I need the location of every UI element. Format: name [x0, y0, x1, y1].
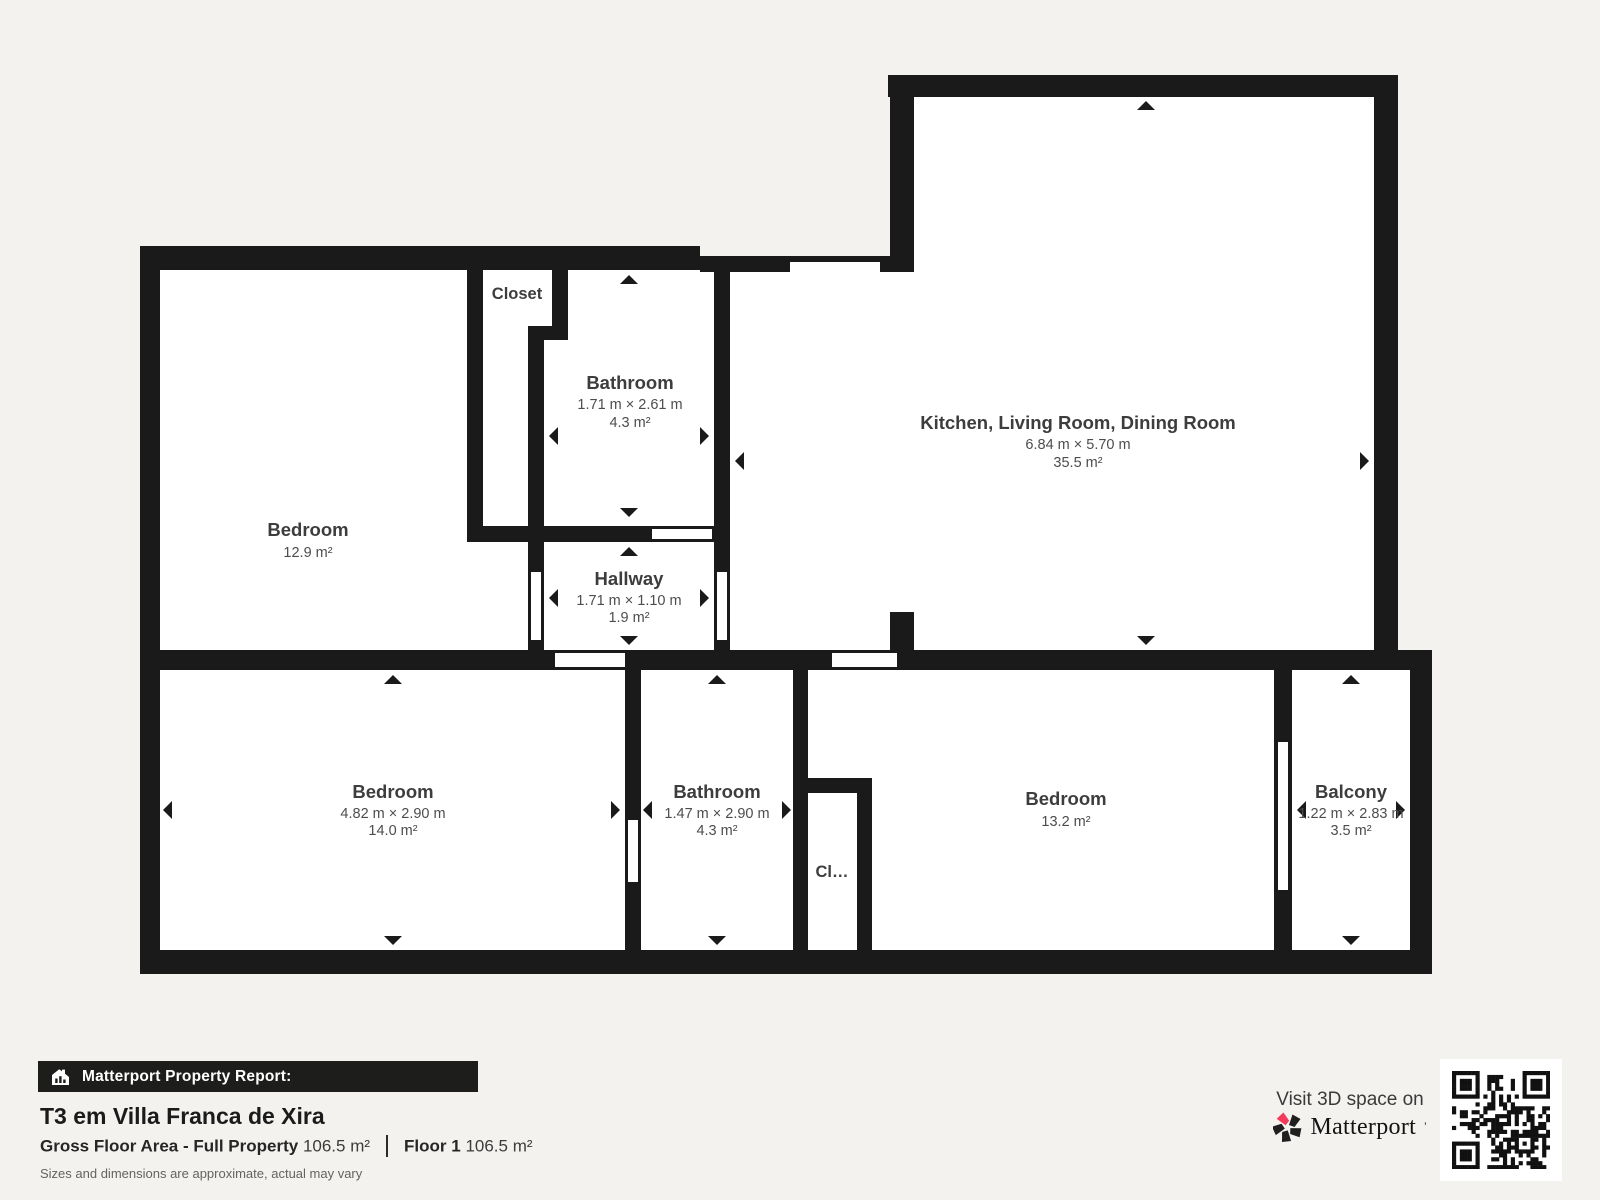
wall-bedroom1-right: [467, 270, 483, 526]
door-bedroom3-balcony: [1278, 742, 1288, 890]
room-label-closet-2: Cl…: [816, 863, 849, 881]
door-entrance: [790, 262, 880, 272]
room-name: Balcony: [1315, 781, 1388, 802]
room-area: 13.2 m²: [1041, 814, 1090, 830]
room-name: Closet: [492, 285, 543, 303]
wall-closet1-notch: [528, 326, 568, 340]
wall-closet1-right-upper: [552, 270, 568, 326]
matterport-pinwheel-icon: [1273, 1112, 1302, 1142]
wall-kitchen-top: [888, 75, 1398, 97]
matterport-trademark: ’: [1424, 1122, 1426, 1133]
room-name: Bathroom: [586, 372, 673, 393]
floor-kitchen-upper: [914, 97, 1374, 280]
qr-code-pattern: [1452, 1071, 1550, 1169]
room-label-closet-1: Closet: [492, 285, 543, 303]
gross-floor-area-value: 106.5 m²: [303, 1136, 370, 1155]
wall-balcony-right: [1410, 650, 1432, 974]
wall-kitchen-stub: [890, 612, 914, 650]
size-disclaimer: Sizes and dimensions are approximate, ac…: [40, 1166, 362, 1181]
door-hallway-bedroom2: [555, 653, 625, 667]
door-bedroom1-hallway: [531, 572, 541, 640]
door-kitchen-bedroom3: [832, 653, 897, 667]
summary-divider: [386, 1135, 388, 1157]
wall-closet1-right-lower: [528, 340, 544, 526]
room-name: Hallway: [595, 568, 665, 589]
room-dimensions: 1.47 m × 2.90 m: [664, 806, 769, 822]
room-area: 3.5 m²: [1330, 823, 1371, 839]
floor-bottom-band: [150, 668, 1410, 952]
matterport-floorplan-report-page: { "colors": { "background": "#f3f2ef", "…: [0, 0, 1600, 1200]
room-dimensions: 6.84 m × 5.70 m: [1025, 437, 1130, 453]
room-dimensions: 1.71 m × 2.61 m: [577, 397, 682, 413]
wall-top-left: [140, 246, 700, 270]
property-title: T3 em Villa Franca de Xira: [40, 1103, 325, 1130]
room-name: Cl…: [816, 863, 849, 881]
room-area: 14.0 m²: [368, 823, 417, 839]
room-name: Bedroom: [1025, 788, 1106, 809]
room-name: Bedroom: [352, 781, 433, 802]
room-area: 4.3 m²: [696, 823, 737, 839]
visit-3d-space-text: Visit 3D space on: [1252, 1089, 1448, 1111]
wall-bathroom2-right: [793, 670, 808, 950]
wall-kitchen-right: [1374, 75, 1398, 670]
matterport-logo[interactable]: Matterport’: [1252, 1112, 1448, 1142]
room-area: 12.9 m²: [283, 545, 332, 561]
floor-area-summary: Gross Floor Area - Full Property 106.5 m…: [40, 1136, 533, 1158]
door-bedroom2-bathroom2: [628, 820, 638, 882]
wall-mid-horizontal: [140, 650, 1432, 670]
wall-outer-bottom: [140, 950, 1432, 974]
wall-bedroom2-right: [625, 670, 641, 950]
qr-code[interactable]: [1440, 1059, 1562, 1181]
room-area: 1.9 m²: [608, 610, 649, 626]
door-bathroom1-hallway: [652, 529, 712, 539]
room-name: Kitchen, Living Room, Dining Room: [920, 412, 1236, 433]
wall-closet1-bottom: [467, 526, 545, 542]
floor-label: Floor 1: [404, 1136, 461, 1155]
room-dimensions: 1.22 m × 2.83 m: [1298, 806, 1403, 822]
matterport-wordmark: Matterport: [1310, 1114, 1416, 1141]
report-title-bar: Matterport Property Report:: [38, 1061, 478, 1092]
room-dimensions: 1.71 m × 1.10 m: [576, 593, 681, 609]
wall-outer-left: [140, 246, 160, 974]
gross-floor-area-label: Gross Floor Area - Full Property: [40, 1136, 298, 1155]
room-area: 4.3 m²: [609, 415, 650, 431]
wall-closet2-right: [857, 778, 872, 950]
room-name: Bathroom: [673, 781, 760, 802]
floorplan-diagram: Bedroom 12.9 m² Closet Bathroom 1.71 m ×…: [0, 0, 1600, 1010]
room-name: Bedroom: [267, 519, 348, 540]
report-bar-label: Matterport Property Report:: [82, 1068, 292, 1086]
floor-top-band: [150, 262, 1374, 654]
room-dimensions: 4.82 m × 2.90 m: [340, 806, 445, 822]
wall-kitchen-left: [890, 75, 914, 272]
floor-value: 106.5 m²: [465, 1136, 532, 1155]
door-hallway-kitchen: [717, 572, 727, 640]
house-chart-icon: [51, 1068, 70, 1086]
room-area: 35.5 m²: [1053, 455, 1102, 471]
